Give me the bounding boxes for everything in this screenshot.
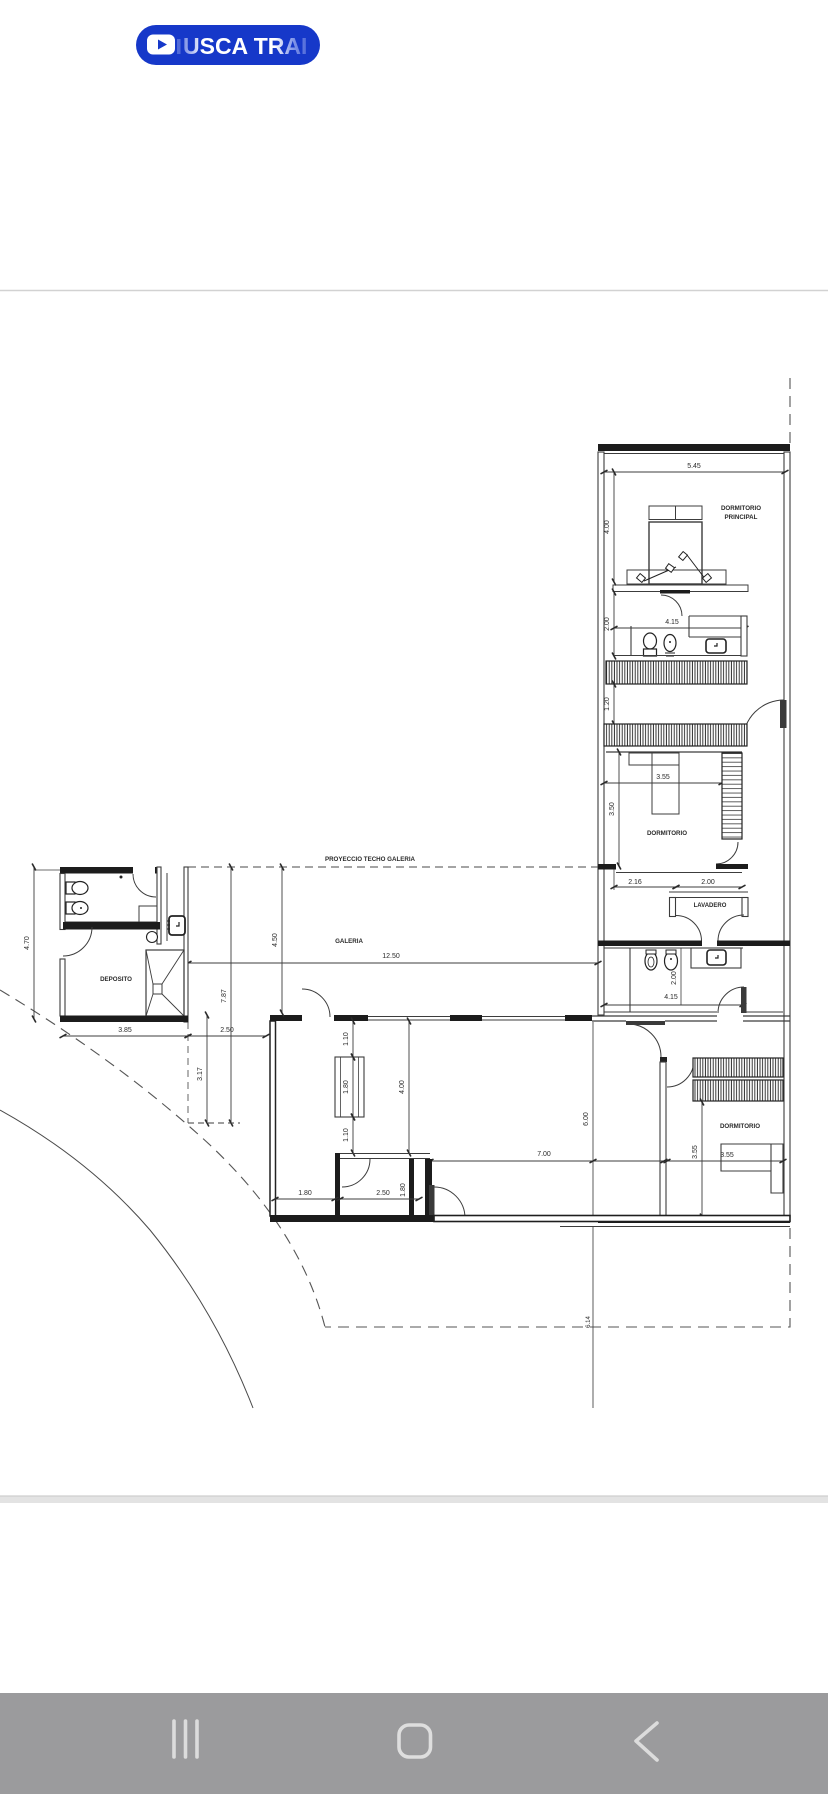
svg-text:GALERIA: GALERIA: [335, 938, 363, 945]
svg-text:1.80: 1.80: [343, 1080, 350, 1094]
svg-text:3.55: 3.55: [692, 1145, 699, 1159]
svg-text:1.80: 1.80: [298, 1190, 312, 1197]
svg-text:2.00: 2.00: [671, 971, 678, 985]
svg-text:LAVADERO: LAVADERO: [694, 903, 727, 909]
svg-text:4.70: 4.70: [24, 936, 31, 950]
svg-text:3.55: 3.55: [720, 1152, 734, 1159]
svg-text:4.00: 4.00: [399, 1080, 406, 1094]
svg-text:3.17: 3.17: [197, 1067, 204, 1081]
svg-text:DORMITORIO: DORMITORIO: [721, 505, 761, 512]
svg-text:1.10: 1.10: [343, 1032, 350, 1046]
svg-text:1.10: 1.10: [343, 1128, 350, 1142]
svg-text:2.00: 2.00: [604, 617, 611, 631]
svg-text:4.50: 4.50: [272, 933, 279, 947]
svg-text:DEPOSITO: DEPOSITO: [100, 976, 132, 983]
svg-text:6.14: 6.14: [586, 1316, 592, 1328]
svg-text:2.00: 2.00: [701, 879, 715, 886]
svg-text:5.45: 5.45: [687, 463, 701, 470]
svg-text:4.15: 4.15: [664, 994, 678, 1001]
svg-text:PRINCIPAL: PRINCIPAL: [725, 514, 758, 521]
svg-text:6.00: 6.00: [583, 1112, 590, 1126]
svg-text:7.87: 7.87: [221, 989, 228, 1003]
svg-text:DORMITORIO: DORMITORIO: [647, 830, 687, 837]
svg-text:USCA TRAI: USCA TRAI: [183, 33, 307, 59]
svg-text:2.50: 2.50: [376, 1190, 390, 1197]
svg-text:1.20: 1.20: [604, 697, 611, 711]
svg-text:7.00: 7.00: [537, 1151, 551, 1158]
svg-text:2.16: 2.16: [628, 879, 642, 886]
svg-text:PROYECCIO TECHO GALERIA: PROYECCIO TECHO GALERIA: [325, 856, 416, 863]
svg-text:4.00: 4.00: [604, 520, 611, 534]
svg-text:1.80: 1.80: [400, 1183, 407, 1197]
svg-text:12.50: 12.50: [382, 953, 400, 960]
svg-text:4.15: 4.15: [665, 619, 679, 626]
svg-text:3.85: 3.85: [118, 1027, 132, 1034]
svg-text:3.55: 3.55: [656, 774, 670, 781]
svg-text:3.50: 3.50: [609, 802, 616, 816]
svg-text:DORMITORIO: DORMITORIO: [720, 1123, 760, 1130]
svg-text:2.50: 2.50: [220, 1027, 234, 1034]
